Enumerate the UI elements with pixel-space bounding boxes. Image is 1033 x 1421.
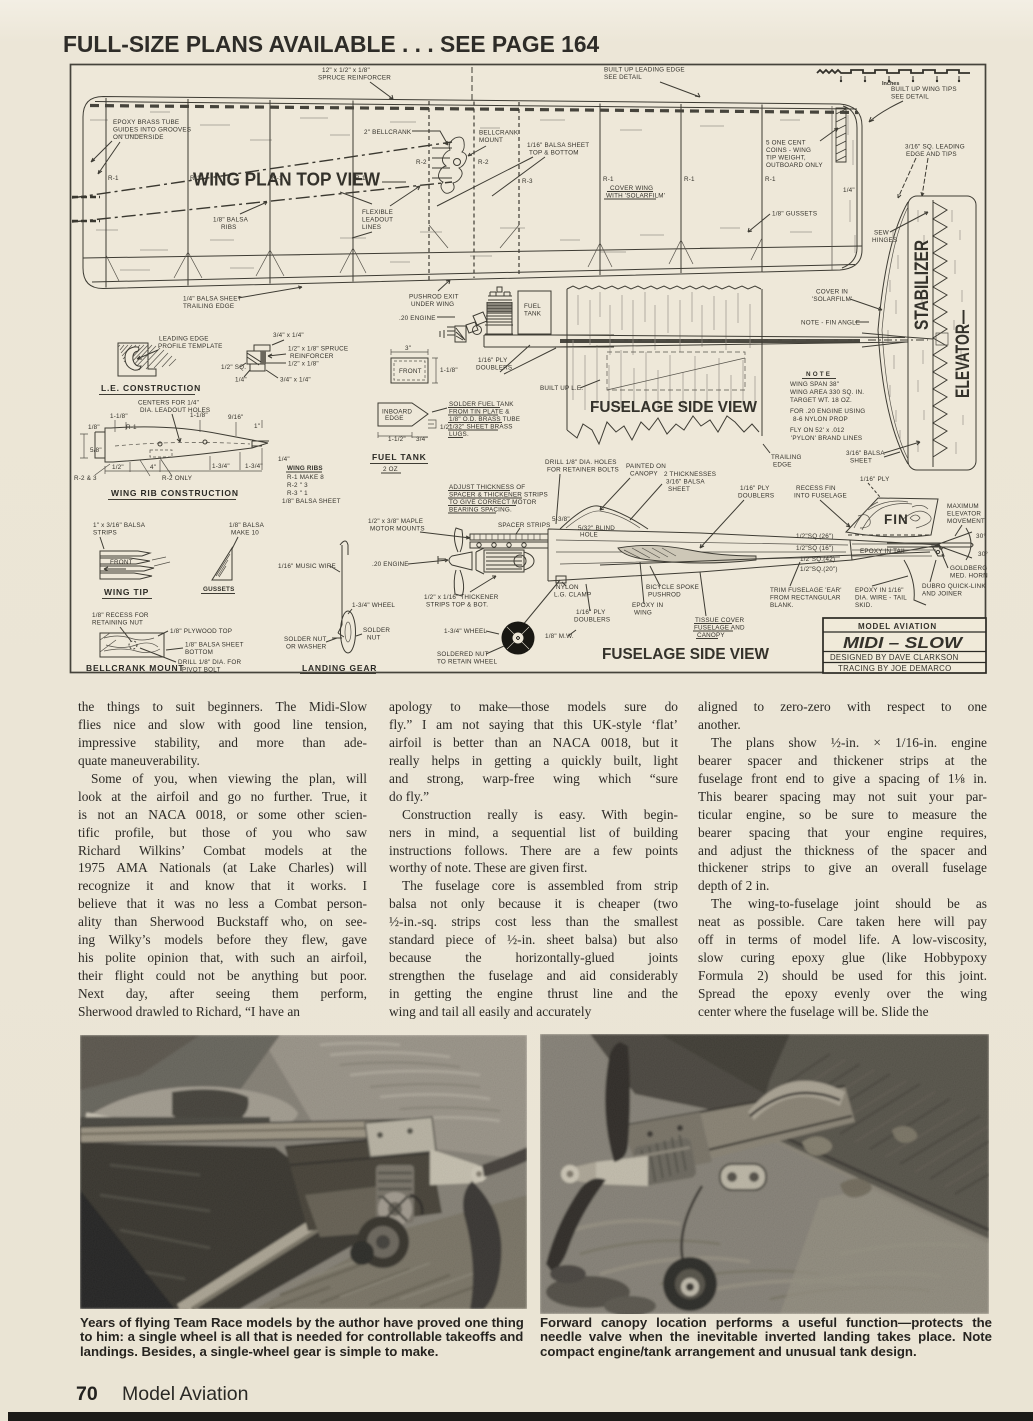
svg-text:R-2: R-2 <box>416 159 427 166</box>
svg-text:1-3/4": 1-3/4" <box>212 463 230 470</box>
svg-text:1/2" x 1/8": 1/2" x 1/8" <box>288 361 319 368</box>
svg-text:NUT: NUT <box>367 635 381 642</box>
svg-text:GUSSETS: GUSSETS <box>203 586 235 593</box>
svg-text:1/2"SQ.(42): 1/2"SQ.(42) <box>800 556 835 563</box>
svg-text:1/2"SQ (16"): 1/2"SQ (16") <box>796 545 834 552</box>
svg-text:1/2" x 3/8" MAPLE: 1/2" x 3/8" MAPLE <box>368 518 423 525</box>
svg-text:GUIDES INTO GROOVES: GUIDES INTO GROOVES <box>113 127 191 134</box>
svg-text:MOTOR MOUNTS: MOTOR MOUNTS <box>370 526 425 533</box>
svg-text:SOLDER: SOLDER <box>363 627 390 634</box>
svg-text:BUILT UP L.E.: BUILT UP L.E. <box>540 385 583 392</box>
svg-text:SKID.: SKID. <box>855 602 872 609</box>
svg-text:WING TIP: WING TIP <box>104 587 149 597</box>
svg-text:R-1: R-1 <box>355 175 366 182</box>
svg-text:1/2"SQ.(20"): 1/2"SQ.(20") <box>800 566 838 573</box>
svg-text:5-3/8": 5-3/8" <box>552 516 570 523</box>
svg-text:FUSELAGE SIDE VIEW: FUSELAGE SIDE VIEW <box>602 646 770 663</box>
svg-text:R-1: R-1 <box>684 176 695 183</box>
svg-text:3/16" SQ. LEADING: 3/16" SQ. LEADING <box>905 144 965 151</box>
svg-text:RECESS FIN: RECESS FIN <box>796 485 836 492</box>
svg-text:1/16" PLY: 1/16" PLY <box>740 485 770 492</box>
svg-text:AND JOINER: AND JOINER <box>922 591 962 598</box>
svg-text:1/8" RECESS FOR: 1/8" RECESS FOR <box>92 612 149 619</box>
svg-text:DRILL 1/8" DIA. FOR: DRILL 1/8" DIA. FOR <box>178 659 241 666</box>
svg-text:EPOXY IN: EPOXY IN <box>632 602 663 609</box>
svg-text:NOTE - FIN ANGLE: NOTE - FIN ANGLE <box>801 320 860 327</box>
svg-text:1/32" SHEET BRASS: 1/32" SHEET BRASS <box>449 424 513 431</box>
svg-text:3/4": 3/4" <box>416 436 428 443</box>
svg-text:FROM RECTANGULAR: FROM RECTANGULAR <box>770 595 841 602</box>
svg-text:PUSHROD: PUSHROD <box>648 592 681 599</box>
svg-text:MAXIMUM: MAXIMUM <box>947 503 979 510</box>
svg-text:TRACING BY JOE DEMARCO: TRACING BY JOE DEMARCO <box>838 664 951 673</box>
svg-text:DIA. WIRE - TAIL: DIA. WIRE - TAIL <box>855 595 907 602</box>
svg-text:PAINTED ON: PAINTED ON <box>626 463 666 470</box>
svg-text:HOLE: HOLE <box>580 532 598 539</box>
svg-text:WING AREA 330 SQ. IN.: WING AREA 330 SQ. IN. <box>790 389 864 396</box>
svg-text:COINS - WING: COINS - WING <box>766 147 811 154</box>
svg-text:1/4" BALSA SHEET: 1/4" BALSA SHEET <box>183 296 242 303</box>
svg-text:R-2 & 3: R-2 & 3 <box>74 475 97 482</box>
svg-text:STABILIZER: STABILIZER <box>912 240 933 330</box>
svg-text:1/8" M.W.: 1/8" M.W. <box>545 633 574 640</box>
svg-text:1/8" BALSA: 1/8" BALSA <box>213 217 249 224</box>
svg-text:Inches: Inches <box>882 81 899 87</box>
svg-text:R-2 ONLY: R-2 ONLY <box>162 475 193 482</box>
svg-text:BUILT UP WING TIPS: BUILT UP WING TIPS <box>891 86 957 93</box>
svg-text:1/4": 1/4" <box>843 187 855 194</box>
svg-text:MIDI – SLOW: MIDI – SLOW <box>843 635 964 652</box>
svg-text:MODEL AVIATION: MODEL AVIATION <box>858 622 937 631</box>
svg-text:FLEXIBLE: FLEXIBLE <box>362 209 393 216</box>
svg-text:3/16" BALSA: 3/16" BALSA <box>666 479 705 486</box>
svg-text:ELEVATOR: ELEVATOR <box>947 511 981 518</box>
svg-text:TRIM FUSELAGE 'EAR': TRIM FUSELAGE 'EAR' <box>770 587 842 594</box>
svg-text:R-1: R-1 <box>765 176 776 183</box>
svg-text:3/4" x 1/4": 3/4" x 1/4" <box>280 377 311 384</box>
svg-text:EDGE AND TIPS: EDGE AND TIPS <box>906 151 957 158</box>
svg-text:PIVOT BOLT: PIVOT BOLT <box>182 667 221 674</box>
svg-text:1-1/8": 1-1/8" <box>110 413 128 420</box>
svg-text:TISSUE COVER: TISSUE COVER <box>695 617 745 624</box>
svg-text:BICYCLE SPOKE: BICYCLE SPOKE <box>646 584 699 591</box>
svg-text:FLY ON 52' x .012: FLY ON 52' x .012 <box>790 427 845 434</box>
svg-text:SEE DETAIL: SEE DETAIL <box>891 94 929 101</box>
svg-text:STRIPS TOP & BOT.: STRIPS TOP & BOT. <box>426 602 488 609</box>
svg-text:2 THICKNESSES: 2 THICKNESSES <box>664 471 716 478</box>
svg-text:1/16" PLY: 1/16" PLY <box>860 476 890 483</box>
svg-text:FRONT: FRONT <box>110 559 133 566</box>
svg-text:MAKE 10: MAKE 10 <box>231 530 259 537</box>
svg-text:DOUBLERS: DOUBLERS <box>574 617 610 624</box>
svg-text:SHEET: SHEET <box>668 486 690 493</box>
svg-text:1-1/2": 1-1/2" <box>388 436 406 443</box>
svg-text:2" BELLCRANK: 2" BELLCRANK <box>364 129 412 136</box>
svg-text:R-1: R-1 <box>603 176 614 183</box>
svg-text:EDGE: EDGE <box>385 415 404 422</box>
svg-text:UNDER WING: UNDER WING <box>411 301 454 308</box>
svg-text:CANOPY: CANOPY <box>630 471 658 478</box>
svg-text:8-6 NYLON PROP: 8-6 NYLON PROP <box>793 416 848 423</box>
svg-text:.20 ENGINE: .20 ENGINE <box>372 561 409 568</box>
svg-text:1/8" BALSA SHEET: 1/8" BALSA SHEET <box>282 498 341 505</box>
svg-text:FRONT: FRONT <box>399 368 422 375</box>
svg-text:1" x 3/16" BALSA: 1" x 3/16" BALSA <box>93 522 146 529</box>
svg-text:R-1: R-1 <box>126 424 137 431</box>
svg-text:1-3/4": 1-3/4" <box>245 463 263 470</box>
svg-text:BELLCRANK MOUNT: BELLCRANK MOUNT <box>86 663 184 673</box>
svg-text:MOVEMENT: MOVEMENT <box>947 518 985 525</box>
svg-text:SEW: SEW <box>874 230 889 237</box>
svg-text:R-2: R-2 <box>478 159 489 166</box>
svg-text:OUTBOARD ONLY: OUTBOARD ONLY <box>766 162 823 169</box>
svg-text:SPACER & THICKENER STRIPS: SPACER & THICKENER STRIPS <box>449 492 548 499</box>
svg-text:FROM TIN PLATE &: FROM TIN PLATE & <box>449 409 510 416</box>
svg-text:1-3/4" WHEEL: 1-3/4" WHEEL <box>444 628 487 635</box>
svg-text:MED. HORN: MED. HORN <box>950 573 988 580</box>
svg-text:FUSELAGE SIDE VIEW: FUSELAGE SIDE VIEW <box>590 399 758 416</box>
svg-text:1/8" BALSA: 1/8" BALSA <box>229 522 265 529</box>
svg-text:1/16" PLY: 1/16" PLY <box>478 357 508 364</box>
svg-text:30°: 30° <box>976 532 986 540</box>
svg-text:1/8" BALSA SHEET: 1/8" BALSA SHEET <box>185 642 244 649</box>
svg-text:EPOXY BRASS TUBE: EPOXY BRASS TUBE <box>113 119 179 126</box>
svg-text:PROFILE TEMPLATE: PROFILE TEMPLATE <box>158 343 223 350</box>
svg-text:LEADING EDGE: LEADING EDGE <box>159 336 209 343</box>
svg-text:LINES: LINES <box>362 224 381 231</box>
svg-text:LUGS.: LUGS. <box>449 431 469 438</box>
svg-text:DOUBLERS: DOUBLERS <box>738 493 774 500</box>
svg-text:1/4": 1/4" <box>235 377 247 384</box>
svg-text:3/16" BALSA: 3/16" BALSA <box>846 450 885 457</box>
svg-text:GOLDBERG: GOLDBERG <box>950 565 987 572</box>
svg-text:BUILT UP LEADING EDGE: BUILT UP LEADING EDGE <box>604 67 685 74</box>
svg-text:BOTTOM: BOTTOM <box>185 649 213 656</box>
svg-text:L.G. CLAMP: L.G. CLAMP <box>554 592 591 599</box>
svg-text:TANK: TANK <box>524 311 542 318</box>
svg-text:1/8" PLYWOOD TOP: 1/8" PLYWOOD TOP <box>170 628 232 635</box>
svg-text:R-1: R-1 <box>108 175 119 182</box>
svg-text:CANOPY: CANOPY <box>697 632 725 639</box>
svg-text:RETAINING NUT: RETAINING NUT <box>92 620 143 627</box>
svg-text:1/2"SQ (26"): 1/2"SQ (26") <box>796 533 834 540</box>
svg-text:1/8" O.D. BRASS TUBE: 1/8" O.D. BRASS TUBE <box>449 416 520 423</box>
svg-text:R-3: R-3 <box>522 178 533 185</box>
svg-text:1/4": 1/4" <box>278 456 290 463</box>
svg-text:ADJUST THICKNESS OF: ADJUST THICKNESS OF <box>449 484 525 491</box>
svg-text:FUEL: FUEL <box>524 303 541 310</box>
svg-text:REINFORCER: REINFORCER <box>290 353 334 360</box>
svg-text:ELEVATOR—: ELEVATOR— <box>953 310 974 398</box>
svg-text:1/2": 1/2" <box>112 464 124 471</box>
svg-text:'PYLON' BRAND LINES: 'PYLON' BRAND LINES <box>791 435 862 442</box>
svg-text:5 ONE CENT: 5 ONE CENT <box>766 140 806 147</box>
svg-text:TOP & BOTTOM: TOP & BOTTOM <box>529 150 579 157</box>
svg-text:1/16" MUSIC WIRE: 1/16" MUSIC WIRE <box>278 563 336 570</box>
svg-text:30°: 30° <box>978 550 988 558</box>
svg-text:SOLDER NUT: SOLDER NUT <box>284 636 327 643</box>
svg-text:12" x 1/2" x 1/8": 12" x 1/2" x 1/8" <box>322 67 370 74</box>
svg-text:EDGE: EDGE <box>773 462 792 469</box>
svg-text:WING: WING <box>634 610 652 617</box>
svg-text:L.E. CONSTRUCTION: L.E. CONSTRUCTION <box>101 383 201 393</box>
svg-text:BEARING SPACING.: BEARING SPACING. <box>449 507 512 514</box>
svg-text:FOR .20 ENGINE USING: FOR .20 ENGINE USING <box>790 408 865 415</box>
svg-text:ON UNDERSIDE: ON UNDERSIDE <box>113 134 164 141</box>
svg-text:5/8": 5/8" <box>90 447 102 454</box>
svg-text:R-1 MAKE 8: R-1 MAKE 8 <box>287 474 324 481</box>
svg-text:WING SPAN 38": WING SPAN 38" <box>790 381 839 388</box>
svg-text:TRAILING: TRAILING <box>771 454 802 461</box>
svg-text:SPRUCE REINFORCER: SPRUCE REINFORCER <box>318 75 391 82</box>
svg-text:WING RIB CONSTRUCTION: WING RIB CONSTRUCTION <box>111 488 239 498</box>
svg-text:CENTERS FOR 1/4": CENTERS FOR 1/4" <box>138 400 199 407</box>
svg-text:STRIPS: STRIPS <box>93 530 117 537</box>
svg-text:LANDING GEAR: LANDING GEAR <box>302 663 377 673</box>
svg-text:9/16": 9/16" <box>228 414 244 421</box>
svg-text:OR WASHER: OR WASHER <box>286 644 327 651</box>
svg-text:'SOLARFILM': 'SOLARFILM' <box>812 296 852 303</box>
svg-text:1/2" x 1/8" SPRUCE: 1/2" x 1/8" SPRUCE <box>288 346 348 353</box>
svg-text:INTO FUSELAGE: INTO FUSELAGE <box>794 493 847 500</box>
svg-text:SOLDERED NUT: SOLDERED NUT <box>437 651 489 658</box>
svg-text:1-1/8": 1-1/8" <box>440 367 458 374</box>
svg-text:.20 ENGINE: .20 ENGINE <box>399 315 436 322</box>
svg-text:R-1: R-1 <box>190 175 201 182</box>
svg-text:SPACER STRIPS: SPACER STRIPS <box>498 522 551 529</box>
svg-text:EPOXY IN 1/16": EPOXY IN 1/16" <box>855 587 904 594</box>
svg-text:1/2" x 1/16" THICKENER: 1/2" x 1/16" THICKENER <box>424 594 499 601</box>
svg-text:FUSELAGE AND: FUSELAGE AND <box>694 625 745 632</box>
svg-text:FUEL TANK: FUEL TANK <box>372 452 427 462</box>
svg-text:2 OZ: 2 OZ <box>383 466 398 473</box>
svg-text:RIBS: RIBS <box>221 224 237 231</box>
svg-text:HINGES: HINGES <box>872 237 897 244</box>
svg-text:4": 4" <box>150 464 156 471</box>
svg-text:1": 1" <box>254 423 260 430</box>
svg-text:TIP WEIGHT,: TIP WEIGHT, <box>766 155 806 162</box>
svg-text:LEADOUT: LEADOUT <box>362 217 393 224</box>
svg-text:TO RETAIN WHEEL: TO RETAIN WHEEL <box>437 659 497 666</box>
svg-text:SOLDER FUEL TANK: SOLDER FUEL TANK <box>449 401 514 408</box>
svg-text:1-3/4" WHEEL: 1-3/4" WHEEL <box>352 602 395 609</box>
svg-text:TO GIVE CORRECT MOTOR: TO GIVE CORRECT MOTOR <box>449 499 537 506</box>
svg-text:DRILL 1/8" DIA. HOLES: DRILL 1/8" DIA. HOLES <box>545 459 617 466</box>
svg-text:NYLON: NYLON <box>556 584 579 591</box>
svg-text:SHEET: SHEET <box>850 458 872 465</box>
svg-text:BELLCRANK: BELLCRANK <box>479 130 519 137</box>
svg-text:DUBRO QUICK-LINK: DUBRO QUICK-LINK <box>922 583 986 590</box>
svg-text:3/4" x 1/4": 3/4" x 1/4" <box>273 332 304 339</box>
svg-text:COVER IN: COVER IN <box>816 289 848 296</box>
svg-text:EPOXY IN TAIL: EPOXY IN TAIL <box>860 548 907 555</box>
svg-text:WITH 'SOLARFILM': WITH 'SOLARFILM' <box>606 193 665 200</box>
svg-text:R-2 " 3: R-2 " 3 <box>287 482 308 489</box>
svg-text:DIA. LEADOUT HOLES: DIA. LEADOUT HOLES <box>140 407 210 414</box>
svg-text:FOR RETAINER BOLTS: FOR RETAINER BOLTS <box>547 467 619 474</box>
svg-text:BLANK.: BLANK. <box>770 602 794 609</box>
svg-text:1/16" BALSA SHEET: 1/16" BALSA SHEET <box>527 142 589 149</box>
svg-text:WING PLAN TOP VIEW: WING PLAN TOP VIEW <box>193 170 380 190</box>
svg-text:SEE DETAIL: SEE DETAIL <box>604 74 642 81</box>
svg-text:COVER WING: COVER WING <box>610 185 653 192</box>
svg-text:R-1: R-1 <box>272 175 283 182</box>
svg-text:FIN: FIN <box>884 512 909 527</box>
svg-text:DESIGNED BY DAVE CLARKSON: DESIGNED BY DAVE CLARKSON <box>830 653 959 662</box>
svg-text:TRAILING EDGE: TRAILING EDGE <box>183 303 234 310</box>
svg-text:3": 3" <box>405 345 411 352</box>
svg-text:MOUNT: MOUNT <box>479 137 503 144</box>
svg-text:WING RIBS: WING RIBS <box>287 465 323 472</box>
svg-text:1/8": 1/8" <box>88 424 100 431</box>
svg-text:1/8" GUSSETS: 1/8" GUSSETS <box>772 211 817 218</box>
svg-text:R-3 " 1: R-3 " 1 <box>287 490 308 497</box>
svg-text:N O T E: N O T E <box>806 371 830 378</box>
svg-text:1/16" PLY: 1/16" PLY <box>576 609 606 616</box>
svg-text:TARGET WT. 18 OZ.: TARGET WT. 18 OZ. <box>790 397 852 404</box>
svg-text:PUSHROD EXIT: PUSHROD EXIT <box>409 294 459 301</box>
